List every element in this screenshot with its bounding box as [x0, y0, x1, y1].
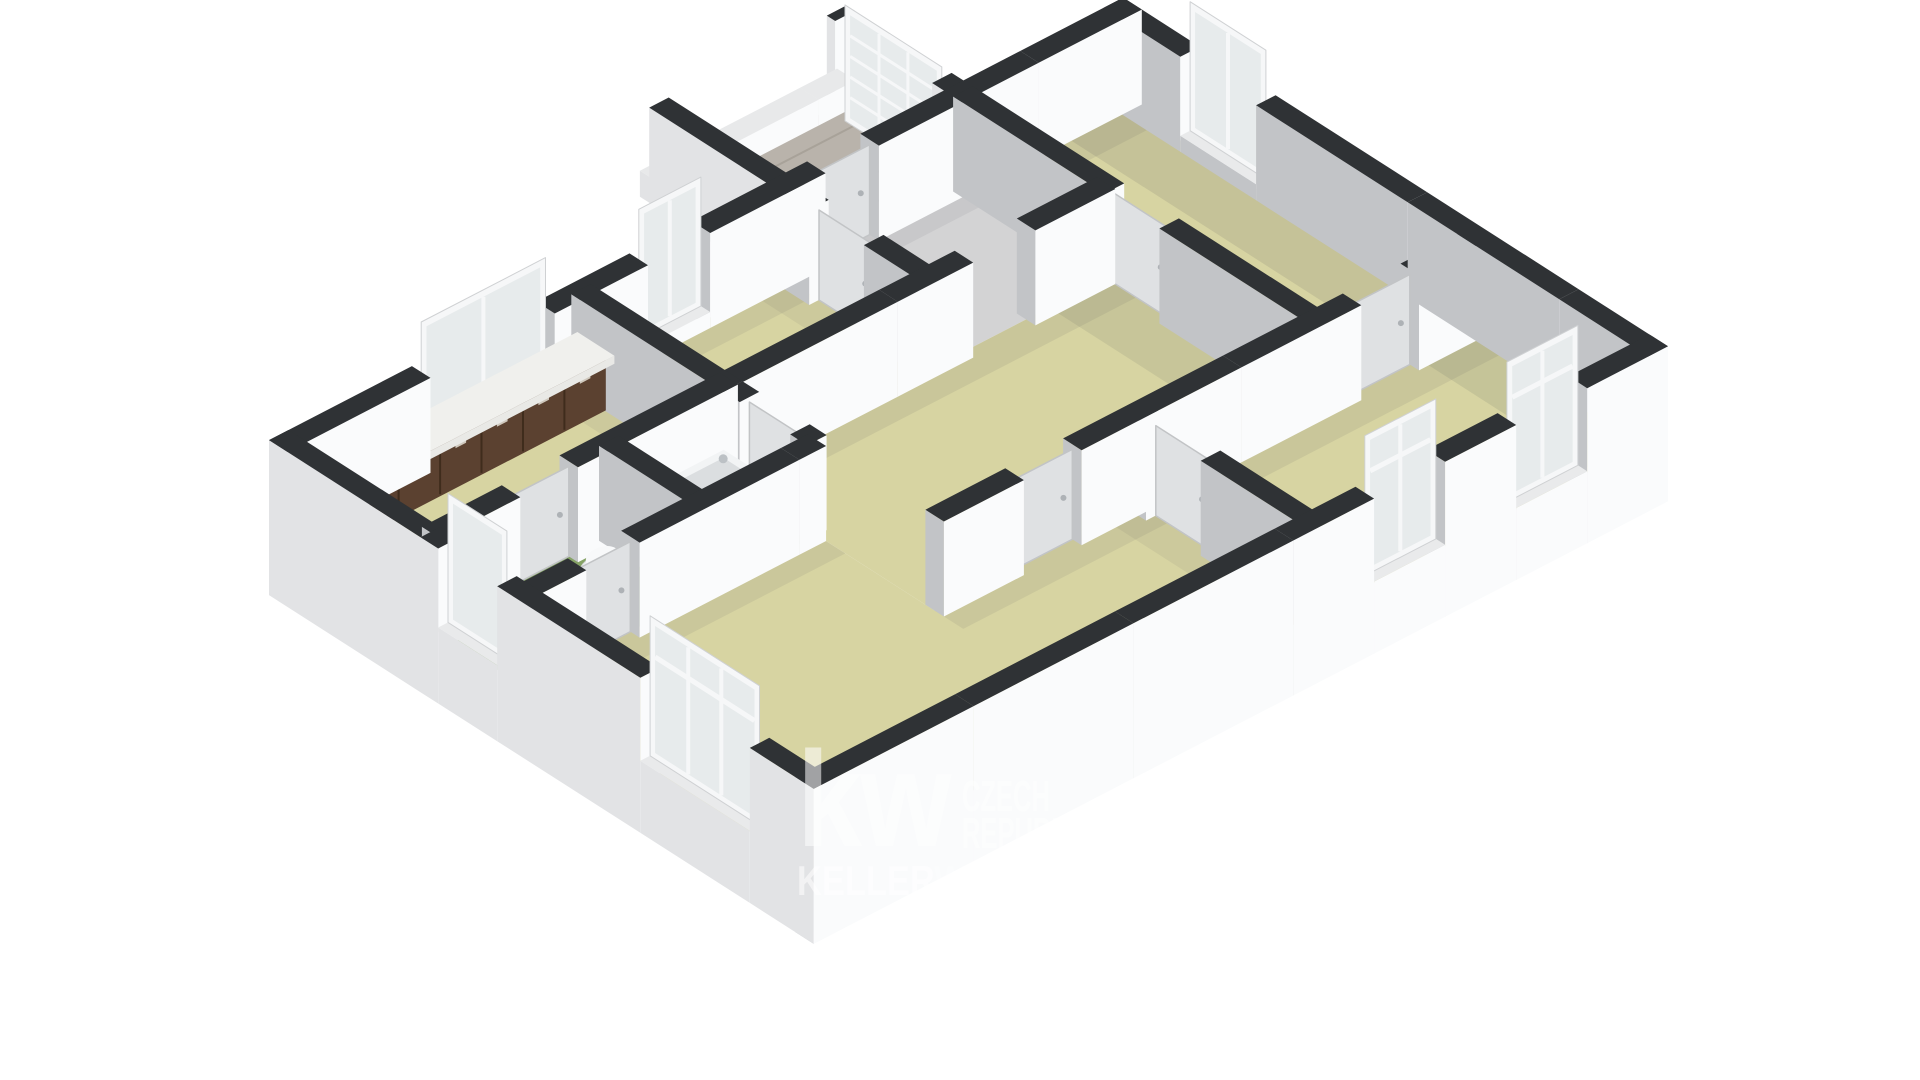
floorplan-page: kw CZECH REPUBLIC KELLERWILLIAMS — [0, 0, 1920, 1080]
floorplan-3d-render — [0, 0, 1920, 1080]
